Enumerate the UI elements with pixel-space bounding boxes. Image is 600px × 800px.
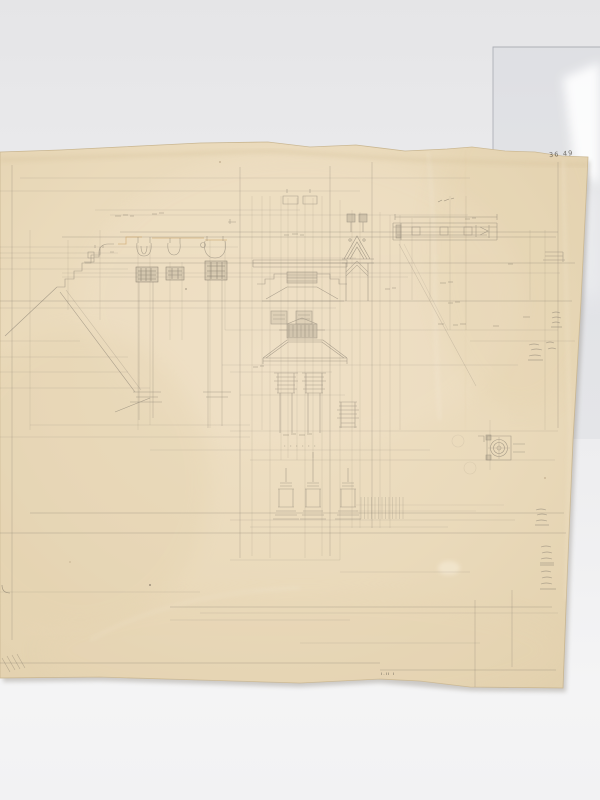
bottom-edge-mark: ı.ıı ı — [381, 672, 395, 677]
photo-of-architectural-drawing: 36 49 ı.ıı ı — [0, 0, 600, 800]
drawing-scene — [0, 0, 600, 800]
